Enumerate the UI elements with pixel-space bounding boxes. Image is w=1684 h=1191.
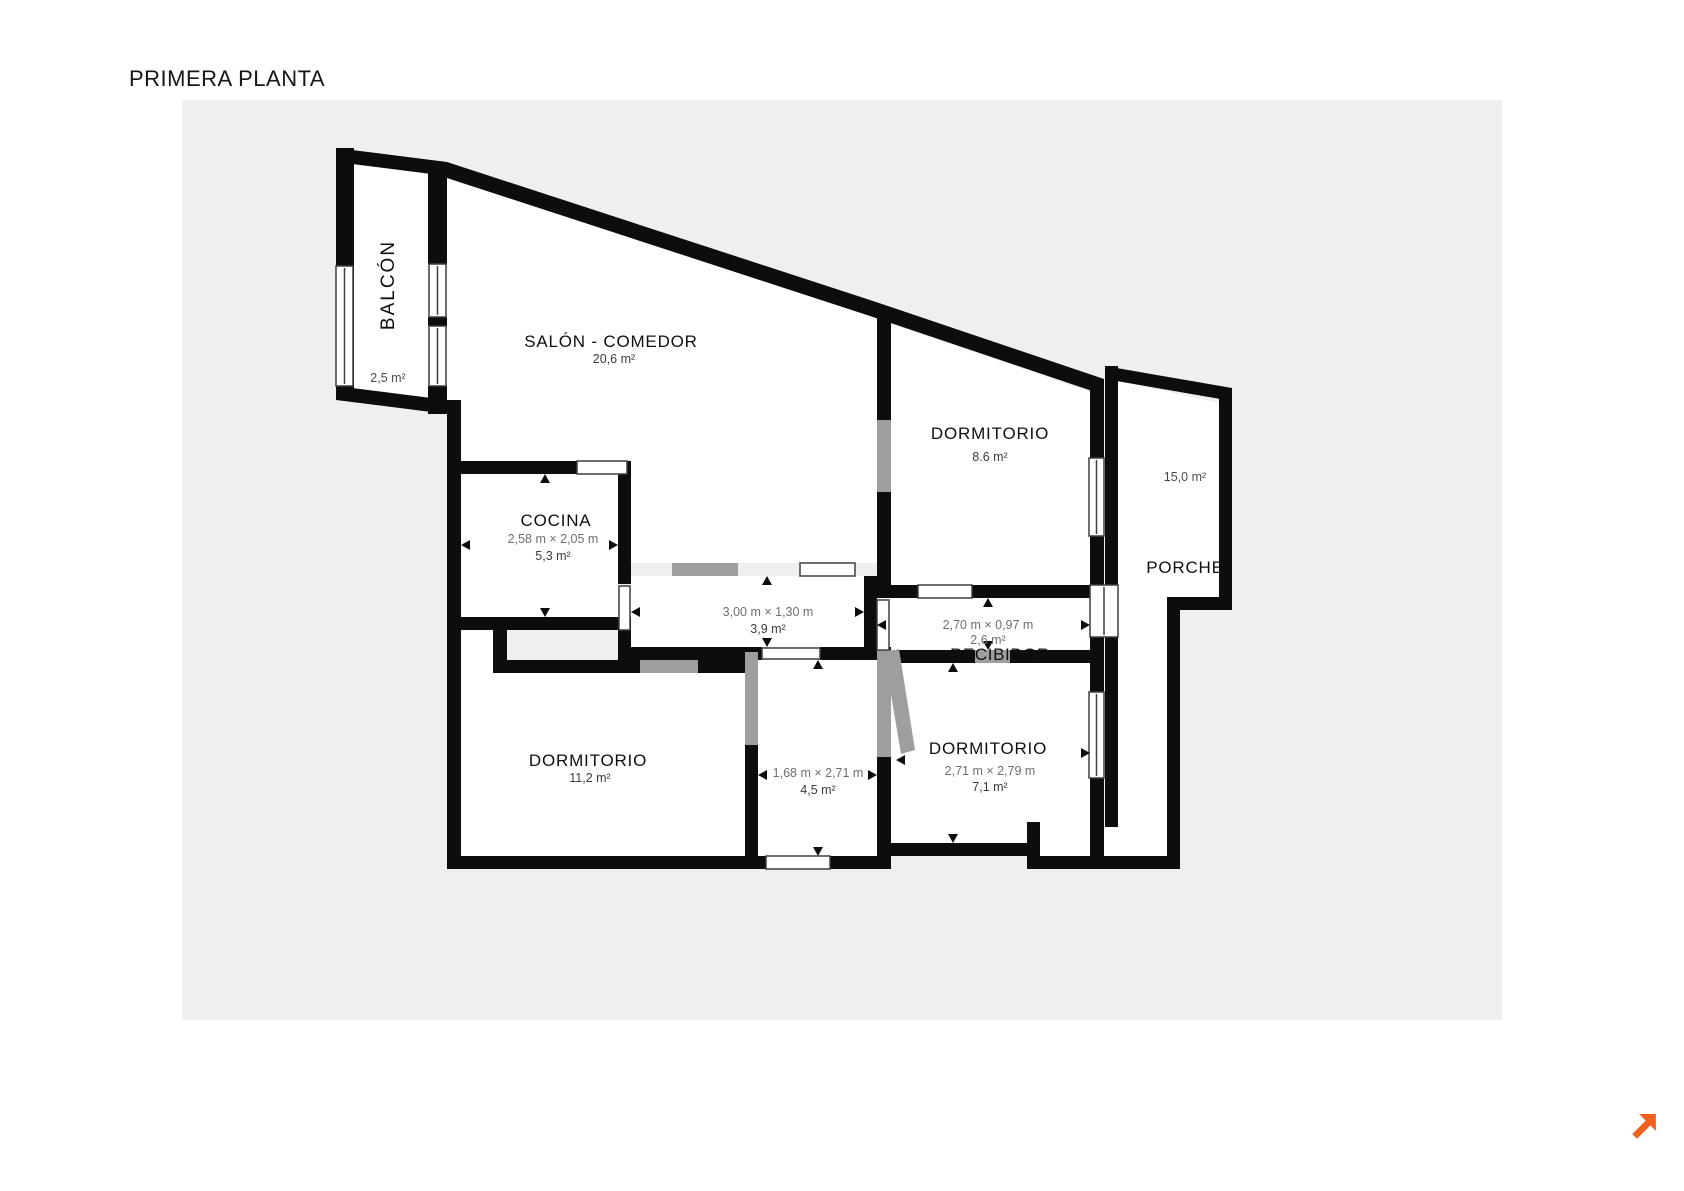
wall-segment	[1105, 366, 1118, 585]
wall-segment	[447, 617, 631, 630]
label-porche-area: 15,0 m²	[1164, 470, 1206, 484]
label-habitacion-central-dims: 1,68 m × 2,71 m	[773, 766, 864, 780]
door-gap-habitacion-central	[762, 648, 820, 659]
wall-segment	[1167, 597, 1180, 869]
wall-segment	[1027, 822, 1040, 869]
wall-segment	[428, 162, 447, 264]
label-pasillo-area: 3,9 m²	[750, 622, 785, 636]
opening-dormitorio-izquierdo	[640, 660, 698, 673]
label-porche: PORCHE	[1146, 558, 1224, 577]
wall-segment	[428, 317, 447, 326]
label-dormitorio-derecho: DORMITORIO	[929, 739, 1047, 758]
label-dormitorio-izquierdo-area: 11,2 m²	[569, 771, 610, 785]
page: PRIMERA PLANTA	[0, 0, 1684, 1191]
label-salon: SALÓN - COMEDOR	[524, 332, 698, 351]
arrow-shape	[1632, 1114, 1656, 1139]
wall-segment	[447, 400, 461, 869]
wall-segment	[493, 660, 640, 673]
wall-segment	[618, 474, 631, 584]
room-habitacion-central	[758, 660, 877, 856]
label-recibidor-dims: 2,70 m × 0,97 m	[943, 618, 1034, 632]
wall-segment	[618, 647, 762, 660]
room-dormitorio-izquierdo-bump	[461, 630, 493, 673]
door-leaf-cocina	[619, 586, 630, 630]
label-habitacion-central-area: 4,5 m²	[800, 783, 835, 797]
wall-segment	[1090, 637, 1104, 692]
wall-segment	[972, 585, 1090, 598]
label-dormitorio-derecho-area: 7,1 m²	[972, 780, 1007, 794]
label-pasillo-dims: 3,00 m × 1,30 m	[723, 605, 814, 619]
partial-wall-central-left	[745, 652, 758, 745]
label-dormitorio-derecho-dims: 2,71 m × 2,79 m	[945, 764, 1036, 778]
wall-segment	[864, 576, 877, 647]
label-balcon: BALCÓN	[377, 240, 399, 330]
wall-segment	[745, 745, 758, 869]
wall-segment	[493, 630, 507, 660]
label-salon-area: 20,6 m²	[593, 352, 635, 366]
window-pasillo	[800, 563, 855, 576]
wall-segment	[1090, 536, 1104, 585]
wall-segment	[891, 843, 1040, 856]
floor-plan: BALCÓN 2,5 m² SALÓN - COMEDOR 20,6 m² DO…	[0, 0, 1684, 1191]
label-dormitorio-superior: DORMITORIO	[931, 424, 1049, 443]
wall-segment	[877, 757, 891, 856]
brand-arrow-icon	[1630, 1114, 1657, 1141]
wall-segment	[1105, 637, 1118, 827]
floor-plan-svg: BALCÓN 2,5 m² SALÓN - COMEDOR 20,6 m² DO…	[0, 0, 1684, 1191]
wall-segment	[618, 630, 631, 647]
label-dormitorio-superior-area: 8.6 m²	[972, 450, 1007, 464]
wall-segment	[1090, 379, 1104, 458]
wall-segment	[877, 585, 918, 598]
label-cocina-area: 5,3 m²	[535, 549, 570, 563]
label-cocina-dims: 2,58 m × 2,05 m	[508, 532, 599, 546]
opening-salon-dormitorio	[877, 420, 891, 492]
opening-salon-pasillo	[672, 563, 738, 576]
window-cocina	[577, 461, 627, 474]
wall-segment	[1090, 778, 1104, 856]
wall-segment	[447, 461, 577, 474]
label-cocina: COCINA	[521, 511, 592, 530]
label-dormitorio-izquierdo: DORMITORIO	[529, 751, 647, 770]
wall-segment	[428, 386, 447, 414]
label-balcon-area: 2,5 m²	[370, 371, 405, 385]
wall-segment	[877, 316, 891, 420]
window-habitacion-central	[766, 856, 830, 869]
label-recibidor: RECIBIDOR	[950, 645, 1050, 664]
window-recibidor	[918, 585, 972, 598]
wall-segment	[877, 492, 891, 585]
wall-segment	[1027, 856, 1180, 869]
